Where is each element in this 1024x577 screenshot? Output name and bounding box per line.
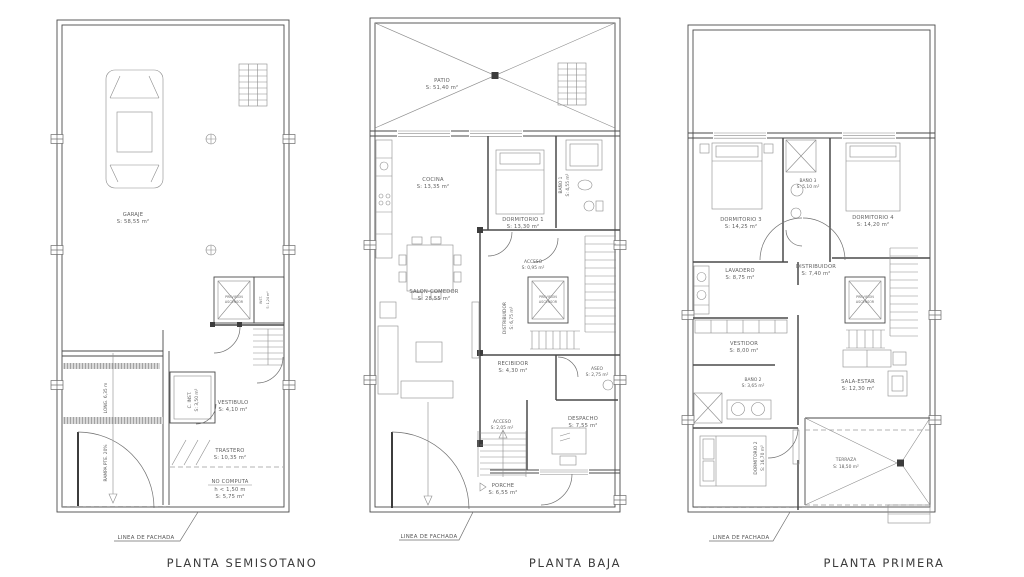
lavadero-label: LAVADERO <box>725 268 755 274</box>
facade-line-label: LINEA DE FACHADA <box>118 535 175 541</box>
trastero-label: TRASTERO <box>214 448 244 454</box>
dormitorio4-label: DORMITORIO 4 <box>852 215 894 221</box>
floor-plan-drawing: PREVISION ASCENSOR INST. S: 1,24 m² GARA… <box>0 0 1024 577</box>
facade-wall <box>688 132 935 140</box>
desk-icon <box>552 428 586 465</box>
cocina-area: S: 13,35 m² <box>417 184 450 190</box>
facade-wall <box>370 130 620 138</box>
vestibulo-label: VESTIBULO <box>218 400 249 406</box>
dormitorio1-area: S: 13,30 m² <box>507 224 540 230</box>
patio-area: S: 51,40 m² <box>426 85 459 91</box>
wall-pier-icon <box>51 135 63 144</box>
recibidor-label: RECIBIDOR <box>498 361 529 367</box>
wall-pier-icon <box>364 376 376 385</box>
garage-area: S: 58,55 m² <box>117 219 150 225</box>
elevator-label: ASCENSOR <box>225 300 244 304</box>
elevator-label: PREVISION <box>856 295 874 299</box>
kitchen-counter <box>376 140 392 258</box>
distribuidor-area: S: 7,40 m² <box>801 271 830 277</box>
cocina-label: COCINA <box>422 177 444 183</box>
bano1-area: S: 4,55 m² <box>565 173 571 196</box>
wall-pier-icon <box>283 135 295 144</box>
sofa-icon <box>378 302 479 398</box>
floor-plan-sheet: PREVISION ASCENSOR INST. S: 1,24 m² GARA… <box>0 0 1024 577</box>
wall-pier-icon <box>682 416 694 425</box>
ramp-slope-label: RAMPA PTE. 20% <box>103 444 109 481</box>
dormitorio3-area: S: 14,25 m² <box>725 224 758 230</box>
door-arc-icon <box>760 218 845 458</box>
lavadero-area: S: 8,75 m² <box>725 275 754 281</box>
toilet-icon <box>603 380 613 390</box>
c-inst-label: C. INST. <box>187 392 193 409</box>
ramp-dimension-arrow <box>109 353 117 503</box>
bano1-label: BAÑO 1 <box>557 176 564 193</box>
facade-line-note: LINEA DE FACHADA <box>399 512 473 540</box>
sala-estar-area: S: 12,30 m² <box>842 386 875 392</box>
patio-label: PATIO <box>434 78 450 84</box>
wall-pier-icon <box>614 496 626 505</box>
inst-room-area: S: 1,24 m² <box>266 291 270 309</box>
wall-pier-icon <box>364 241 376 250</box>
wall-pier-icon <box>283 381 295 390</box>
laundry-icon <box>694 266 709 314</box>
aseo-label: ASEO <box>591 366 604 372</box>
bano3-area: S: 5,10 m² <box>797 184 820 190</box>
terraza-label: TERRAZA <box>835 457 856 463</box>
garage-label: GARAJE <box>123 212 144 218</box>
salon-label: SALON-COMEDOR <box>409 289 458 295</box>
bed-icon <box>846 143 900 211</box>
stairs-icon <box>530 236 616 349</box>
interior-walls <box>693 138 930 510</box>
plan-title: PLANTA PRIMERA <box>823 556 944 570</box>
patio-cross <box>375 23 615 128</box>
terraza-area: S: 18,50 m² <box>833 464 859 470</box>
bathroom-fixtures <box>566 140 603 211</box>
elevator-label: PREVISION <box>539 295 557 299</box>
bed-icon <box>700 143 773 209</box>
facade-line-note: LINEA DE FACHADA <box>114 512 198 541</box>
sala-estar-label: SALA-ESTAR <box>841 379 875 385</box>
elevator-label: ASCENSOR <box>856 300 875 304</box>
inst-room-label: INST. <box>259 296 263 305</box>
porche-label: PORCHE <box>492 483 515 489</box>
wall-pier-icon <box>929 311 941 320</box>
distribuidor-label: DISTRIBUIDOR <box>502 302 508 334</box>
elevator-label: PREVISION <box>225 295 243 299</box>
no-computa-height: h < 1,50 m <box>214 487 245 493</box>
acceso-sup-area: S: 0,95 m² <box>522 265 545 271</box>
entry-arrow-icon <box>480 483 486 491</box>
bano2-area: S: 3,65 m² <box>742 383 765 389</box>
vestidor-area: S: 8,00 m² <box>729 348 758 354</box>
no-computa-area: S: 5,75 m² <box>215 494 244 500</box>
dormitorio2-label: DORMITORIO 2 <box>753 441 759 474</box>
no-computa-label: NO COMPUTA <box>211 479 248 485</box>
wall-pier-icon <box>51 381 63 390</box>
plan-primera: PREVISION ASCENSOR DORMITORIO 3 S: 14,25… <box>682 25 945 570</box>
dormitorio2-area: S: 16,70 m² <box>760 445 766 471</box>
porche-area: S: 6,55 m² <box>488 490 517 496</box>
plan-title: PLANTA BAJA <box>529 556 621 570</box>
facade-line-label: LINEA DE FACHADA <box>401 534 458 540</box>
wall-pier-icon <box>614 241 626 250</box>
wall-pier-icon <box>682 311 694 320</box>
bano3-label: BAÑO 3 <box>800 177 817 184</box>
salon-area: S: 28,55 m² <box>418 296 451 302</box>
despacho-label: DESPACHO <box>568 416 598 422</box>
despacho-area: S: 7,55 m² <box>568 423 597 429</box>
entry-door-icon <box>392 402 469 509</box>
wall-pier-icon <box>929 416 941 425</box>
plan-semisotano: PREVISION ASCENSOR INST. S: 1,24 m² GARA… <box>51 20 317 570</box>
facade-line-label: LINEA DE FACHADA <box>713 535 770 541</box>
acceso-inf-area: S: 2,05 m² <box>491 425 514 431</box>
plan-title: PLANTA SEMISOTANO <box>167 556 318 570</box>
acceso-inf-label: ACCESO <box>493 419 512 425</box>
c-inst-area: S: 3,50 m² <box>194 388 200 411</box>
interior-walls <box>62 322 284 505</box>
wardrobe-icon <box>695 320 787 333</box>
bathroom-fixtures <box>694 393 771 423</box>
stairs-icon <box>253 329 283 365</box>
recibidor-area: S: 4,30 m² <box>498 368 527 374</box>
distribuidor-label: DISTRIBUIDOR <box>796 264 836 270</box>
acceso-sup-label: ACCESO <box>524 259 543 265</box>
wall-pier-icon <box>283 246 295 255</box>
bano2-label: BAÑO 2 <box>745 376 762 383</box>
vent-grille-icon <box>239 64 267 106</box>
wall-pier-icon <box>614 376 626 385</box>
ramp-length-label: LONG. 6,35 m <box>103 383 109 414</box>
plan-baja: PREVISION ASCENSOR PATIO S: 51,40 m² COC… <box>364 18 626 570</box>
facade-line-note: LINEA DE FACHADA <box>709 512 790 541</box>
vestidor-label: VESTIDOR <box>730 341 758 347</box>
wall-pier-icon <box>51 246 63 255</box>
dormitorio1-label: DORMITORIO 1 <box>502 217 544 223</box>
column-marker-icon <box>206 134 216 255</box>
dormitorio4-area: S: 14,20 m² <box>857 222 890 228</box>
elevator-label: ASCENSOR <box>539 300 558 304</box>
outer-walls <box>370 18 620 512</box>
dormitorio3-label: DORMITORIO 3 <box>720 217 762 223</box>
aseo-area: S: 2,75 m² <box>586 372 609 378</box>
vent-grille-icon <box>558 63 586 105</box>
bed-icon <box>496 150 544 214</box>
distribuidor-area: S: 6,75 m² <box>509 306 515 329</box>
car-icon <box>106 70 163 188</box>
trastero-area: S: 10,35 m² <box>214 455 247 461</box>
vestibulo-area: S: 4,10 m² <box>218 407 247 413</box>
